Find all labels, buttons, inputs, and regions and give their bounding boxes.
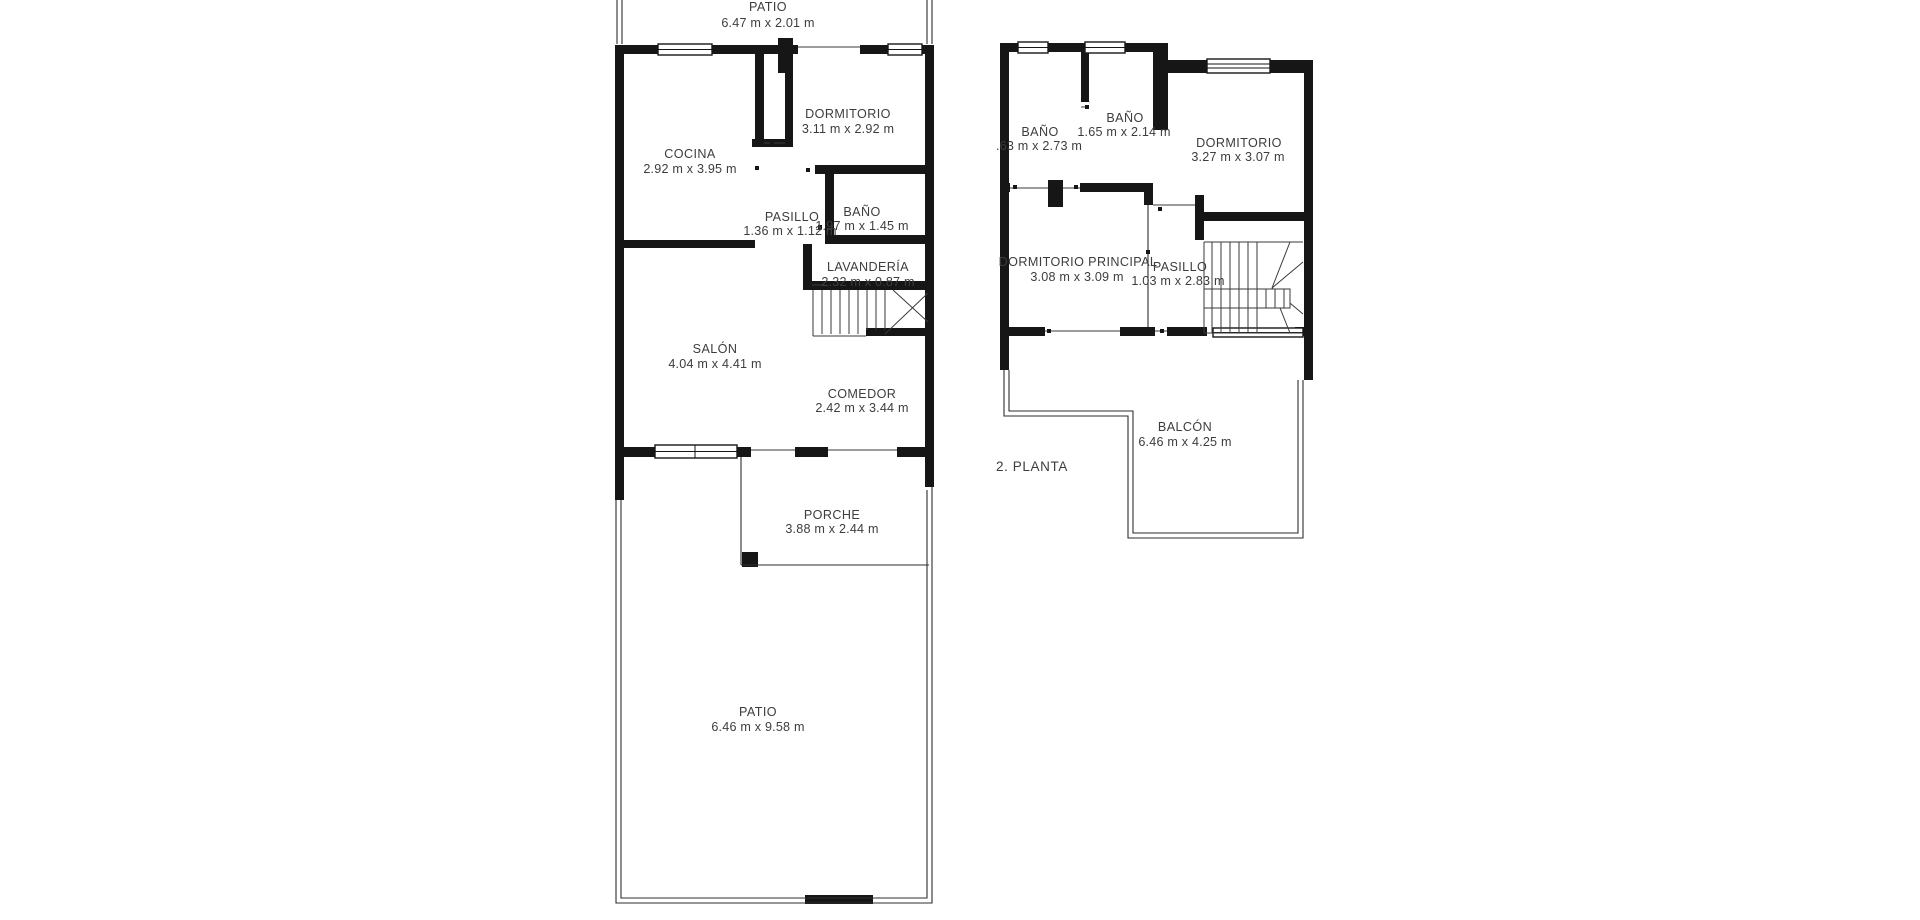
room-dims: 2.92 m x 3.95 m <box>643 162 736 176</box>
room-dims: .63 m x 2.73 m <box>996 139 1082 153</box>
room-dims: 6.47 m x 2.01 m <box>721 16 814 30</box>
room-dims: 3.27 m x 3.07 m <box>1191 150 1284 164</box>
room-dims: 2.32 m x 0.87 m <box>821 275 914 289</box>
room-name: DORMITORIO <box>805 107 891 121</box>
floor-label-2-planta: 2. PLANTA <box>996 459 1068 474</box>
room-dims: 6.46 m x 9.58 m <box>711 720 804 734</box>
room-name: BAÑO <box>1106 111 1143 125</box>
room-name: PATIO <box>749 0 787 14</box>
second-floor-plan: BAÑO .63 m x 2.73 m BAÑO 1.65 m x 2.14 m… <box>996 42 1313 538</box>
room-dims: 1.97 m x 1.45 m <box>815 219 908 233</box>
balcony-boundary <box>1004 370 1303 538</box>
room-name: BAÑO <box>1021 125 1058 139</box>
room-name: PATIO <box>739 705 777 719</box>
floorplan-svg: PATIO 6.47 m x 2.01 m DORMITORIO 3.11 m … <box>0 0 1920 920</box>
room-dims: 3.88 m x 2.44 m <box>785 522 878 536</box>
room-label-cocina: COCINA 2.92 m x 3.95 m <box>643 147 736 176</box>
room-label-patio-bottom: PATIO 6.46 m x 9.58 m <box>711 705 804 734</box>
door-markers-ground <box>628 141 827 455</box>
room-name: BALCÓN <box>1158 419 1212 434</box>
room-name: PORCHE <box>804 508 860 522</box>
window-kitchen-top <box>658 44 712 55</box>
room-dims: 4.04 m x 4.41 m <box>668 357 761 371</box>
room-name: SALÓN <box>693 341 738 356</box>
window-dormitorio-top <box>888 44 922 55</box>
room-dims: 1.03 m x 2.83 m <box>1131 274 1224 288</box>
ground-floor-plan: PATIO 6.47 m x 2.01 m DORMITORIO 3.11 m … <box>615 0 934 904</box>
room-label-lavanderia: LAVANDERÍA 2.32 m x 0.87 m <box>821 259 914 289</box>
room-name: PASILLO <box>1153 260 1207 274</box>
room-label-porche: PORCHE 3.88 m x 2.44 m <box>785 508 878 536</box>
room-dims: 6.46 m x 4.25 m <box>1138 435 1231 449</box>
room-dims: 2.42 m x 3.44 m <box>815 401 908 415</box>
room-name: COCINA <box>664 147 716 161</box>
room-name: COMEDOR <box>828 387 897 401</box>
room-label-salon: SALÓN 4.04 m x 4.41 m <box>668 341 761 371</box>
window-salon-bottom <box>655 445 737 458</box>
room-dims: 1.65 m x 2.14 m <box>1077 125 1170 139</box>
room-name: PASILLO <box>765 210 819 224</box>
room-label-dormitorio-second: DORMITORIO 3.27 m x 3.07 m <box>1191 136 1284 164</box>
floorplan-canvas: PATIO 6.47 m x 2.01 m DORMITORIO 3.11 m … <box>0 0 1920 920</box>
room-label-dormitorio-ground: DORMITORIO 3.11 m x 2.92 m <box>802 107 894 136</box>
room-name: BAÑO <box>843 205 880 219</box>
room-name: DORMITORIO PRINCIPAL <box>999 255 1158 269</box>
window-dormitorio2-top <box>1207 59 1270 73</box>
room-name: DORMITORIO <box>1196 136 1282 150</box>
room-dims: 3.11 m x 2.92 m <box>802 122 894 136</box>
room-name: LAVANDERÍA <box>827 259 909 274</box>
window-bano1-top <box>1018 42 1048 53</box>
patio-bottom-boundary <box>616 487 932 903</box>
window-bano2-top <box>1085 42 1125 53</box>
room-label-patio-top: PATIO 6.47 m x 2.01 m <box>721 0 814 30</box>
room-label-balcon: BALCÓN 6.46 m x 4.25 m <box>1138 419 1231 449</box>
room-dims: 3.08 m x 3.09 m <box>1030 270 1123 284</box>
room-label-comedor: COMEDOR 2.42 m x 3.44 m <box>815 387 908 415</box>
